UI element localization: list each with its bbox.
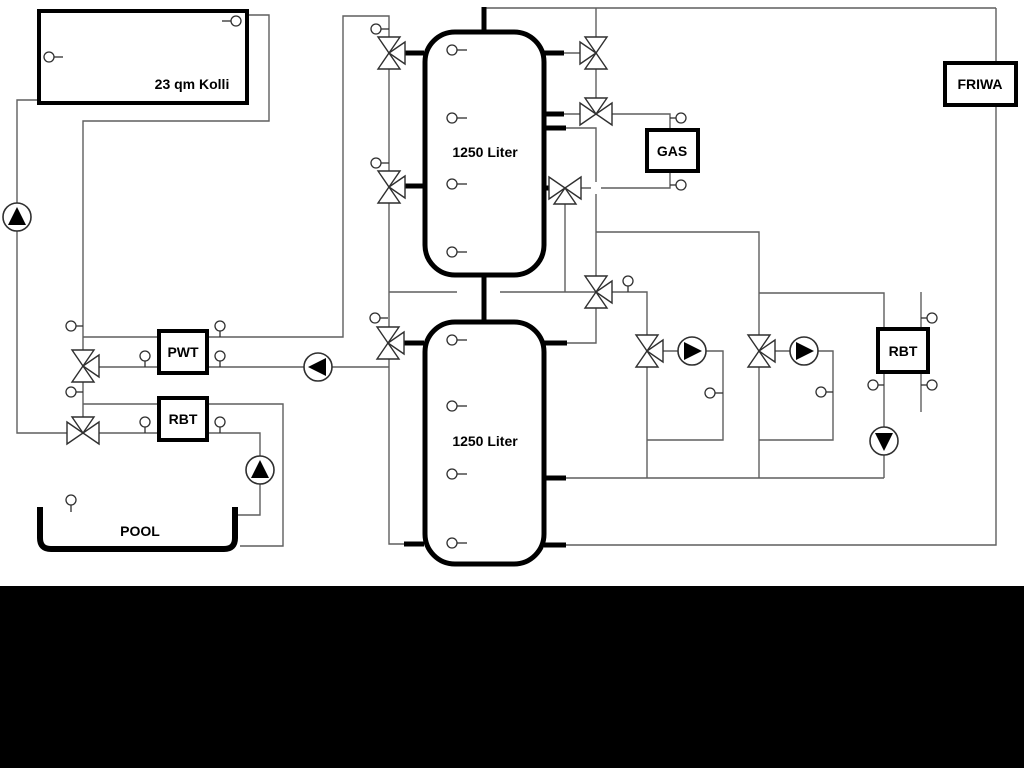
sensor-rbtr-return-icon [868, 380, 884, 390]
buffer-tank-upper-label: 1250 Liter [452, 144, 518, 160]
sensor-valve3-icon [370, 313, 388, 323]
sensor-valve1-icon [371, 24, 389, 34]
sensor-heating-supply-icon [623, 276, 633, 292]
valve-upper-tank-left-bottom [378, 171, 405, 203]
rbt-left-label: RBT [169, 411, 198, 427]
sensor-rbtl-out-icon [215, 417, 225, 433]
pool-label: POOL [120, 523, 160, 539]
pipe-solar-supply [17, 100, 83, 433]
sensor-gas-inlet-icon [670, 113, 686, 123]
sensor-rbtr-sec-bottom-icon [921, 380, 937, 390]
rbt-right-pump-icon [870, 427, 898, 455]
gas-boiler-label: GAS [657, 143, 687, 159]
circuit1-pump-icon [678, 337, 706, 365]
friwa-station-label: FRIWA [957, 76, 1002, 92]
pool-pump-icon [246, 456, 274, 484]
sensor-rbtr-sec-top-icon [921, 313, 937, 323]
sensor-pool-icon [66, 495, 76, 512]
valve-circuit-1 [636, 335, 663, 367]
valve-circuit-2 [748, 335, 775, 367]
buffer-tank-lower-label: 1250 Liter [452, 433, 518, 449]
sensor-rbtl-in-icon [140, 417, 150, 433]
sensor-pwt-in-icon [140, 351, 150, 367]
pwt-pump-icon [304, 353, 332, 381]
valve-solar-pwt [72, 350, 99, 382]
sensor-gas-outlet-icon [670, 180, 686, 190]
valve-solar-rbt [67, 417, 99, 444]
sensor-solar-return-1-icon [66, 321, 83, 331]
valve-lower-tank-left [377, 327, 404, 359]
solar-pump-icon [3, 203, 31, 231]
sensor-valve2-icon [371, 158, 389, 168]
pipe-branch-to-rbt [759, 293, 884, 327]
valve-gas-return [549, 177, 581, 204]
valve-gas-supply [580, 98, 612, 125]
valve-upper-tank-left-top [378, 37, 405, 69]
pwt-label: PWT [167, 344, 199, 360]
rbt-right-label: RBT [889, 343, 918, 359]
sensor-circuit1-icon [705, 388, 723, 398]
circuit2-pump-icon [790, 337, 818, 365]
schematic-canvas: 23 qm Kolli 1250 Liter 1250 Liter GAS FR… [0, 0, 1024, 768]
solar-collector-label: 23 qm Kolli [155, 76, 230, 92]
sensor-pwt-top-icon [215, 321, 225, 337]
pipe-supply-circuit1 [596, 292, 647, 351]
pipe-gas-outlet-a [601, 173, 670, 188]
sensor-pwt-out-icon [215, 351, 225, 367]
valve-tank-top-right [580, 37, 607, 69]
sensor-circuit2-icon [816, 387, 833, 397]
letterbox-bar [0, 586, 1024, 768]
pipe-port3-drop-a [566, 128, 596, 182]
sensor-solar-return-2-icon [66, 387, 83, 397]
